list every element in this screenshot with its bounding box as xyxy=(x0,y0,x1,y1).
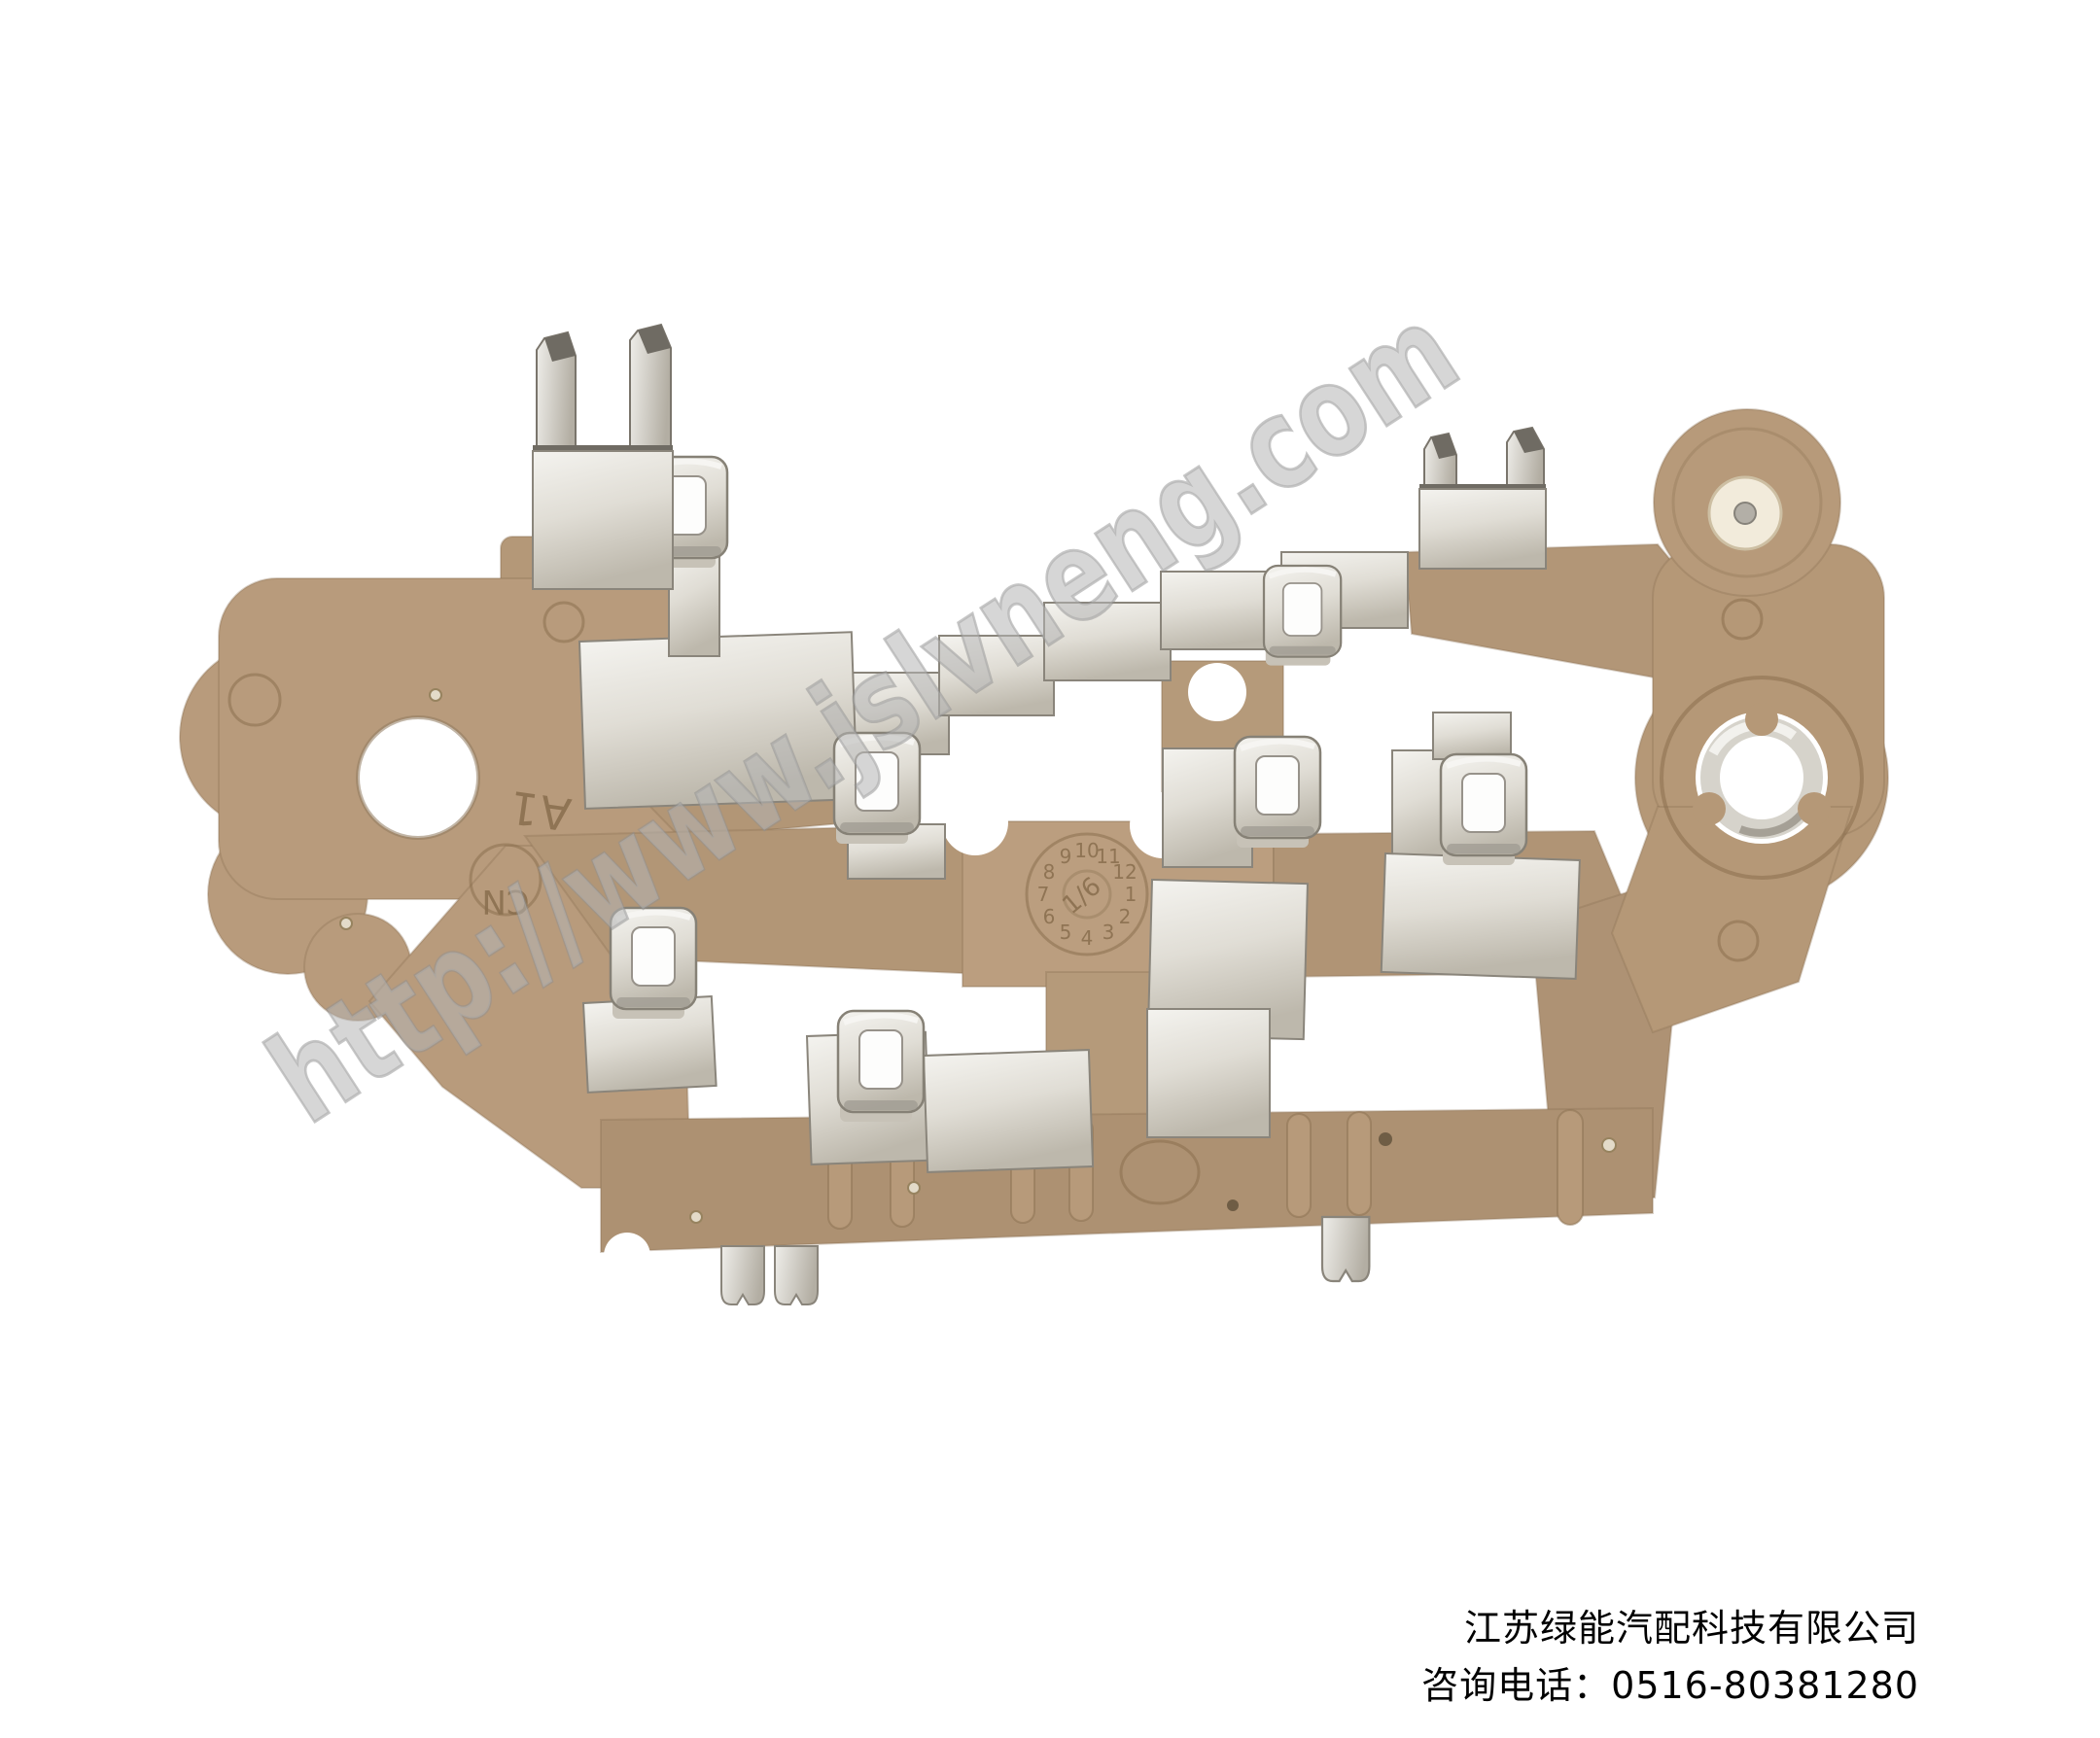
svg-text:9: 9 xyxy=(1060,845,1072,868)
boss-pin xyxy=(1734,503,1756,524)
terminal-fork-left xyxy=(533,325,673,589)
spring-clip xyxy=(1264,566,1341,666)
rib xyxy=(1347,1112,1371,1215)
spring-clip xyxy=(1441,754,1526,865)
svg-text:4: 4 xyxy=(1081,926,1094,950)
phone-number: 咨询电话：0516-80381280 xyxy=(1421,1657,1919,1715)
svg-text:12: 12 xyxy=(1112,860,1137,884)
svg-text:5: 5 xyxy=(1060,921,1072,944)
company-name: 江苏绿能汽配科技有限公司 xyxy=(1421,1600,1919,1657)
svg-text:7: 7 xyxy=(1037,883,1050,906)
svg-text:3: 3 xyxy=(1102,921,1115,944)
bottom-bar xyxy=(601,1108,1653,1252)
spring-clip xyxy=(1235,737,1320,848)
svg-text:2: 2 xyxy=(1119,905,1132,928)
spring-clip xyxy=(838,1011,924,1122)
solder-tab xyxy=(775,1246,818,1304)
rib xyxy=(1287,1114,1311,1217)
mounting-hole-left xyxy=(358,717,478,838)
rib xyxy=(1557,1110,1583,1225)
photo-caption: 江苏绿能汽配科技有限公司 咨询电话：0516-80381280 xyxy=(1421,1600,1919,1716)
solder-tab xyxy=(1322,1217,1369,1281)
metal-plate xyxy=(1382,853,1580,979)
svg-text:8: 8 xyxy=(1043,860,1056,884)
part-illustration: A1 CN 1 2 3 4 5 6 7 8 9 10 11 12 1/6 xyxy=(0,0,2100,1738)
svg-text:1: 1 xyxy=(1125,883,1137,906)
product-photo: A1 CN 1 2 3 4 5 6 7 8 9 10 11 12 1/6 xyxy=(0,0,2100,1738)
metal-plate xyxy=(924,1050,1093,1172)
terminal-fork-right xyxy=(1419,428,1546,569)
boss-insert xyxy=(1709,477,1781,549)
metal-plate xyxy=(1147,1009,1270,1137)
svg-text:6: 6 xyxy=(1043,905,1056,928)
metal-plate xyxy=(1433,713,1511,759)
solder-tab xyxy=(721,1246,764,1304)
